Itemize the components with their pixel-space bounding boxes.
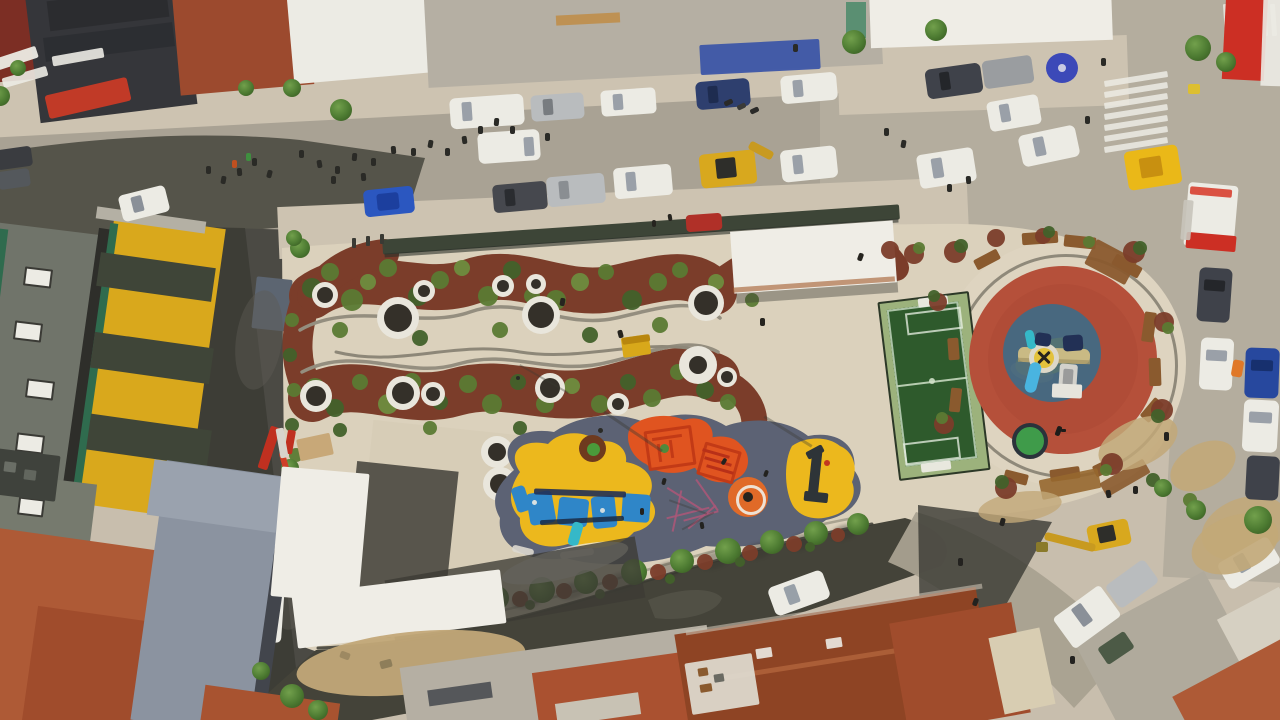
tree-shadow — [320, 619, 355, 644]
play-equipment — [702, 448, 730, 459]
van-white — [916, 147, 978, 189]
red-ladder — [257, 426, 280, 471]
shrub — [936, 412, 948, 424]
tile-roof — [1172, 626, 1280, 720]
planter-dome — [694, 291, 718, 315]
vehicle — [1249, 411, 1273, 423]
shrub — [333, 423, 347, 437]
kids-playground-path — [495, 414, 861, 564]
planter-ring — [522, 296, 560, 334]
play-equipment — [706, 464, 734, 475]
crosswalk-stripe — [1233, 4, 1240, 36]
planter-ring — [483, 467, 517, 501]
blue-slide — [1023, 361, 1042, 394]
planter-ring — [312, 282, 338, 308]
play-equipment — [682, 512, 715, 531]
building — [43, 22, 175, 62]
person — [545, 133, 550, 141]
layer-bottomleft-buildings — [0, 0, 1280, 720]
excavator — [698, 149, 757, 189]
person — [206, 166, 211, 174]
bench — [1049, 466, 1080, 482]
road-shapes-path — [150, 226, 354, 720]
vehicle — [1185, 232, 1236, 252]
person — [266, 169, 273, 178]
scooter-orange — [1231, 359, 1245, 378]
climbing-mat — [557, 497, 590, 528]
planter-dome — [392, 382, 414, 404]
tree — [602, 574, 618, 590]
bench — [1149, 358, 1162, 386]
vehicle — [1058, 64, 1066, 72]
red-ladder — [279, 452, 289, 471]
gray-roof-building — [0, 472, 97, 606]
timber-pile — [1084, 239, 1138, 285]
shrub — [791, 243, 809, 261]
person — [760, 318, 765, 326]
lamp-post — [516, 376, 520, 380]
play-equipment — [669, 499, 707, 515]
vehicle — [612, 94, 623, 111]
tree — [283, 79, 301, 97]
planter-dome — [528, 302, 554, 328]
person — [411, 148, 416, 156]
hedge-wall — [382, 204, 900, 254]
garden-beds-shapes — [0, 0, 1280, 720]
playground-part — [988, 284, 1138, 434]
tree-shadow — [415, 604, 450, 629]
road-shapes-path — [150, 226, 302, 720]
person — [884, 128, 889, 136]
rope-net — [688, 505, 717, 530]
layer-sidewalks — [0, 0, 1280, 720]
bottom-streets-path — [648, 590, 722, 619]
planter-dome — [306, 386, 326, 406]
shrub — [1151, 409, 1165, 423]
vehicle — [625, 172, 637, 192]
layer-park-surface — [0, 0, 1280, 720]
tree — [0, 86, 10, 106]
climbing-mat — [590, 495, 617, 529]
planter-ring — [679, 346, 717, 384]
building — [3, 461, 16, 472]
tree — [280, 684, 304, 708]
shrub — [378, 394, 398, 414]
shrub — [928, 290, 940, 302]
car-blue — [1244, 347, 1280, 398]
tree — [252, 662, 270, 680]
layer-bottom-vehicles — [0, 0, 1280, 720]
skylight — [17, 496, 45, 517]
car-dark — [1245, 455, 1280, 501]
person-orange — [232, 160, 237, 168]
play-equipment — [743, 492, 753, 502]
person — [361, 173, 367, 181]
building — [70, 223, 119, 513]
crosswalk-stripe — [1242, 4, 1249, 36]
tree — [760, 530, 784, 554]
dumpster — [1097, 631, 1135, 665]
window-band — [96, 252, 216, 302]
motorbike — [749, 106, 759, 114]
playground-part — [1052, 383, 1082, 398]
apartment-building — [130, 460, 297, 720]
vehicle — [792, 80, 803, 98]
tree — [10, 60, 26, 76]
tree — [1244, 506, 1272, 534]
dormer — [825, 637, 842, 649]
van-white — [780, 72, 838, 105]
shrub — [1133, 241, 1147, 255]
car-white — [600, 87, 657, 117]
bench — [973, 249, 1001, 271]
red-containers — [1222, 0, 1268, 81]
bottom-streets-path — [918, 505, 1052, 640]
van-white — [449, 93, 525, 129]
building — [427, 682, 493, 707]
play-bridge — [1018, 347, 1090, 365]
person — [371, 158, 376, 166]
person — [617, 329, 624, 338]
tree-shadow — [510, 587, 545, 612]
goal-box — [905, 307, 963, 336]
person — [793, 44, 798, 52]
child — [721, 457, 728, 465]
tree — [786, 536, 802, 552]
bollard — [352, 238, 356, 248]
planter-ring — [492, 275, 514, 297]
tile-roof — [172, 0, 315, 96]
vehicle — [542, 99, 553, 116]
shrub — [1123, 241, 1145, 263]
planter-dome — [384, 304, 412, 332]
shrub — [904, 244, 924, 264]
tile-roof — [0, 527, 161, 720]
goal-box — [903, 437, 961, 466]
site-shed — [251, 276, 292, 331]
canopy-shadow — [343, 461, 458, 603]
rubble-strip — [498, 533, 631, 594]
rope-net — [695, 479, 718, 511]
tree — [308, 700, 328, 720]
car-white — [986, 94, 1042, 133]
tree — [1154, 479, 1172, 497]
person — [252, 158, 257, 166]
layer-garden-shrubs — [0, 0, 1280, 720]
plaza-curb — [954, 254, 1178, 478]
shrub — [913, 242, 925, 254]
tree — [831, 528, 845, 542]
crosswalk-stripe — [1104, 115, 1168, 131]
car-dark — [1196, 267, 1233, 323]
bench — [1003, 469, 1029, 485]
tree-shadow — [555, 579, 588, 602]
shrub — [672, 262, 688, 278]
tree — [556, 583, 572, 599]
tiled-plaza — [355, 420, 536, 608]
bollard — [366, 236, 370, 246]
person — [237, 168, 243, 176]
van-white — [1017, 124, 1080, 167]
excavator — [1086, 518, 1132, 552]
person — [494, 118, 500, 126]
tree-shadow — [651, 558, 684, 581]
car-white — [1242, 399, 1280, 453]
crosswalk-stripe — [1270, 4, 1277, 36]
play-equipment — [704, 456, 732, 467]
rope-net — [672, 490, 683, 531]
layer-garden-beds — [0, 0, 1280, 720]
tile-roof — [532, 648, 724, 720]
shop-awning — [0, 46, 39, 70]
shrub — [708, 274, 724, 290]
window-band — [86, 414, 212, 467]
layer-top-buildings — [0, 0, 1280, 720]
green-circle — [1012, 423, 1048, 459]
layer-pedestrians — [0, 0, 1280, 720]
play-structure — [808, 450, 823, 499]
person — [1164, 432, 1169, 441]
vehicle — [1139, 155, 1164, 178]
vehicle — [1180, 200, 1193, 241]
tree — [330, 99, 352, 121]
shrub — [696, 381, 714, 399]
white-canopy-roof — [291, 569, 506, 648]
court-turf — [887, 301, 978, 467]
crosswalk-stripe — [1104, 82, 1168, 98]
shrub — [412, 330, 428, 346]
garden-beds-path — [846, 246, 896, 268]
rooftop-vents — [0, 448, 61, 501]
shrub — [287, 383, 301, 397]
park-surface-shapes — [0, 0, 1280, 720]
excavator-arm — [747, 140, 774, 160]
layer-canopy-L — [0, 0, 1280, 720]
shrub — [492, 322, 508, 338]
person — [947, 184, 952, 192]
building — [23, 469, 36, 480]
planter-ring — [535, 373, 565, 403]
layer-kids-playground — [0, 0, 1280, 720]
layer-road-shapes — [0, 0, 1280, 720]
tile-roof — [20, 606, 221, 720]
canopy-shadow — [736, 280, 898, 303]
shrub — [302, 278, 322, 298]
layer-hedge-wall — [0, 0, 1280, 720]
tree — [339, 609, 365, 635]
shrub — [326, 399, 344, 417]
tree — [525, 600, 535, 610]
layer-red-playground — [0, 0, 1280, 720]
play-equipment — [805, 444, 825, 460]
large-tile-roof — [674, 587, 994, 720]
skylight — [25, 378, 55, 400]
dirt-patch — [1090, 405, 1185, 481]
brick-building — [0, 0, 58, 83]
playground-part — [1062, 334, 1083, 351]
canopy-part — [379, 659, 393, 670]
crosswalk-stripe — [1251, 4, 1258, 36]
main-street-top — [0, 59, 953, 259]
red-rubber-circle — [969, 266, 1157, 454]
shrub — [987, 229, 1005, 247]
building — [713, 673, 724, 682]
tree — [382, 626, 394, 638]
garden-beds-path — [312, 254, 384, 296]
shrub — [954, 239, 968, 253]
crosswalk-stripe — [1104, 137, 1168, 153]
shrub — [844, 244, 860, 260]
playground-part — [1029, 343, 1059, 373]
shrub — [482, 394, 502, 414]
dirt-ground — [293, 620, 528, 706]
climbing-frame — [643, 425, 696, 471]
shrub — [285, 418, 299, 432]
play-equipment — [660, 444, 669, 453]
tree — [529, 577, 555, 603]
aerial-photo-park-city-block — [0, 0, 1280, 720]
shrub — [742, 440, 758, 456]
layer-top-vehicles — [0, 0, 1280, 720]
vehicle — [1036, 542, 1048, 552]
motorbike — [736, 102, 746, 110]
shrub — [1183, 493, 1197, 507]
person — [352, 153, 358, 161]
sand-circle — [579, 435, 606, 462]
tree — [434, 594, 460, 620]
road-shapes-path — [0, 136, 425, 242]
play-equipment — [600, 508, 605, 513]
rope-net — [666, 507, 709, 520]
center-line — [897, 377, 967, 388]
shrub — [643, 389, 661, 407]
tree — [286, 230, 302, 246]
car-dark — [492, 181, 548, 214]
playground-part — [1061, 429, 1066, 432]
bottom-streets-path — [238, 518, 947, 720]
garden-beds-path — [716, 378, 754, 438]
car-white — [1216, 536, 1280, 591]
shrub — [1100, 464, 1112, 476]
tree — [512, 591, 528, 607]
vehicle — [783, 584, 801, 606]
car-silver — [1104, 559, 1159, 610]
person — [461, 136, 467, 145]
tree — [290, 238, 310, 258]
person — [857, 252, 864, 261]
play-equipment — [669, 440, 674, 458]
circular-plaza — [940, 240, 1186, 486]
shrub — [591, 395, 609, 413]
shrub — [1162, 322, 1174, 334]
shrub — [929, 293, 947, 311]
planter-ring — [421, 382, 445, 406]
person — [559, 298, 565, 307]
intersection — [820, 0, 1280, 280]
layer-plaza-planting — [0, 0, 1280, 720]
shrub — [510, 374, 526, 390]
play-equipment — [804, 491, 829, 503]
person — [966, 176, 972, 184]
tree — [595, 589, 605, 599]
shrub — [1154, 312, 1174, 332]
person — [510, 126, 515, 134]
parasol-umbrella — [1046, 53, 1078, 83]
playground-part — [1062, 369, 1073, 387]
layer-sports-court — [0, 0, 1280, 720]
tree-shadow — [466, 595, 499, 618]
pole-shadow — [603, 411, 663, 453]
bench — [1140, 397, 1165, 423]
shrub — [622, 290, 642, 310]
person — [999, 517, 1006, 526]
shrub — [692, 290, 712, 310]
shrub — [360, 274, 376, 290]
planter-dome — [540, 378, 560, 398]
shrub — [571, 273, 589, 291]
vehicle — [715, 157, 737, 179]
apartment-facades — [424, 0, 883, 88]
tile-roof — [200, 685, 340, 720]
play-equipment — [657, 444, 662, 462]
shrub — [321, 263, 339, 281]
car-gray — [981, 55, 1034, 90]
tree — [742, 545, 758, 561]
skylight — [13, 320, 43, 342]
vehicle — [1204, 279, 1226, 291]
dormer — [755, 647, 772, 659]
child — [640, 508, 644, 515]
garden-beds-path — [312, 516, 864, 637]
kids-playground-path — [728, 477, 768, 517]
tree — [416, 609, 432, 625]
garden-beds-path — [312, 277, 714, 296]
tree — [805, 542, 815, 552]
garden-beds-path — [297, 300, 310, 396]
building — [251, 470, 300, 720]
person — [427, 140, 433, 149]
playground-part — [1037, 351, 1050, 364]
hedge-wall — [384, 218, 898, 257]
tree — [464, 600, 480, 616]
building — [846, 2, 866, 38]
vehicle — [792, 155, 804, 175]
person — [972, 597, 979, 606]
person — [1054, 425, 1062, 436]
pole-shadow — [519, 364, 568, 394]
child — [763, 470, 769, 478]
blue-awning — [699, 39, 820, 75]
tree-shadow — [741, 539, 774, 562]
spinner-hub — [1034, 348, 1054, 368]
shrub — [536, 395, 554, 413]
shrub — [423, 421, 437, 435]
bench — [1141, 311, 1157, 342]
playground-part — [1037, 351, 1050, 364]
tree — [847, 513, 869, 535]
slide — [567, 521, 584, 547]
planter-dome — [317, 287, 333, 303]
climbing-mat — [525, 490, 556, 526]
building — [699, 637, 968, 684]
shrub — [1043, 226, 1055, 238]
right-street — [1108, 121, 1280, 379]
person — [1070, 656, 1075, 664]
kids-playground-shapes — [0, 0, 1280, 720]
dirt-patch — [1183, 502, 1280, 585]
building — [1217, 587, 1280, 669]
crosswalk-stripe — [1104, 93, 1168, 109]
